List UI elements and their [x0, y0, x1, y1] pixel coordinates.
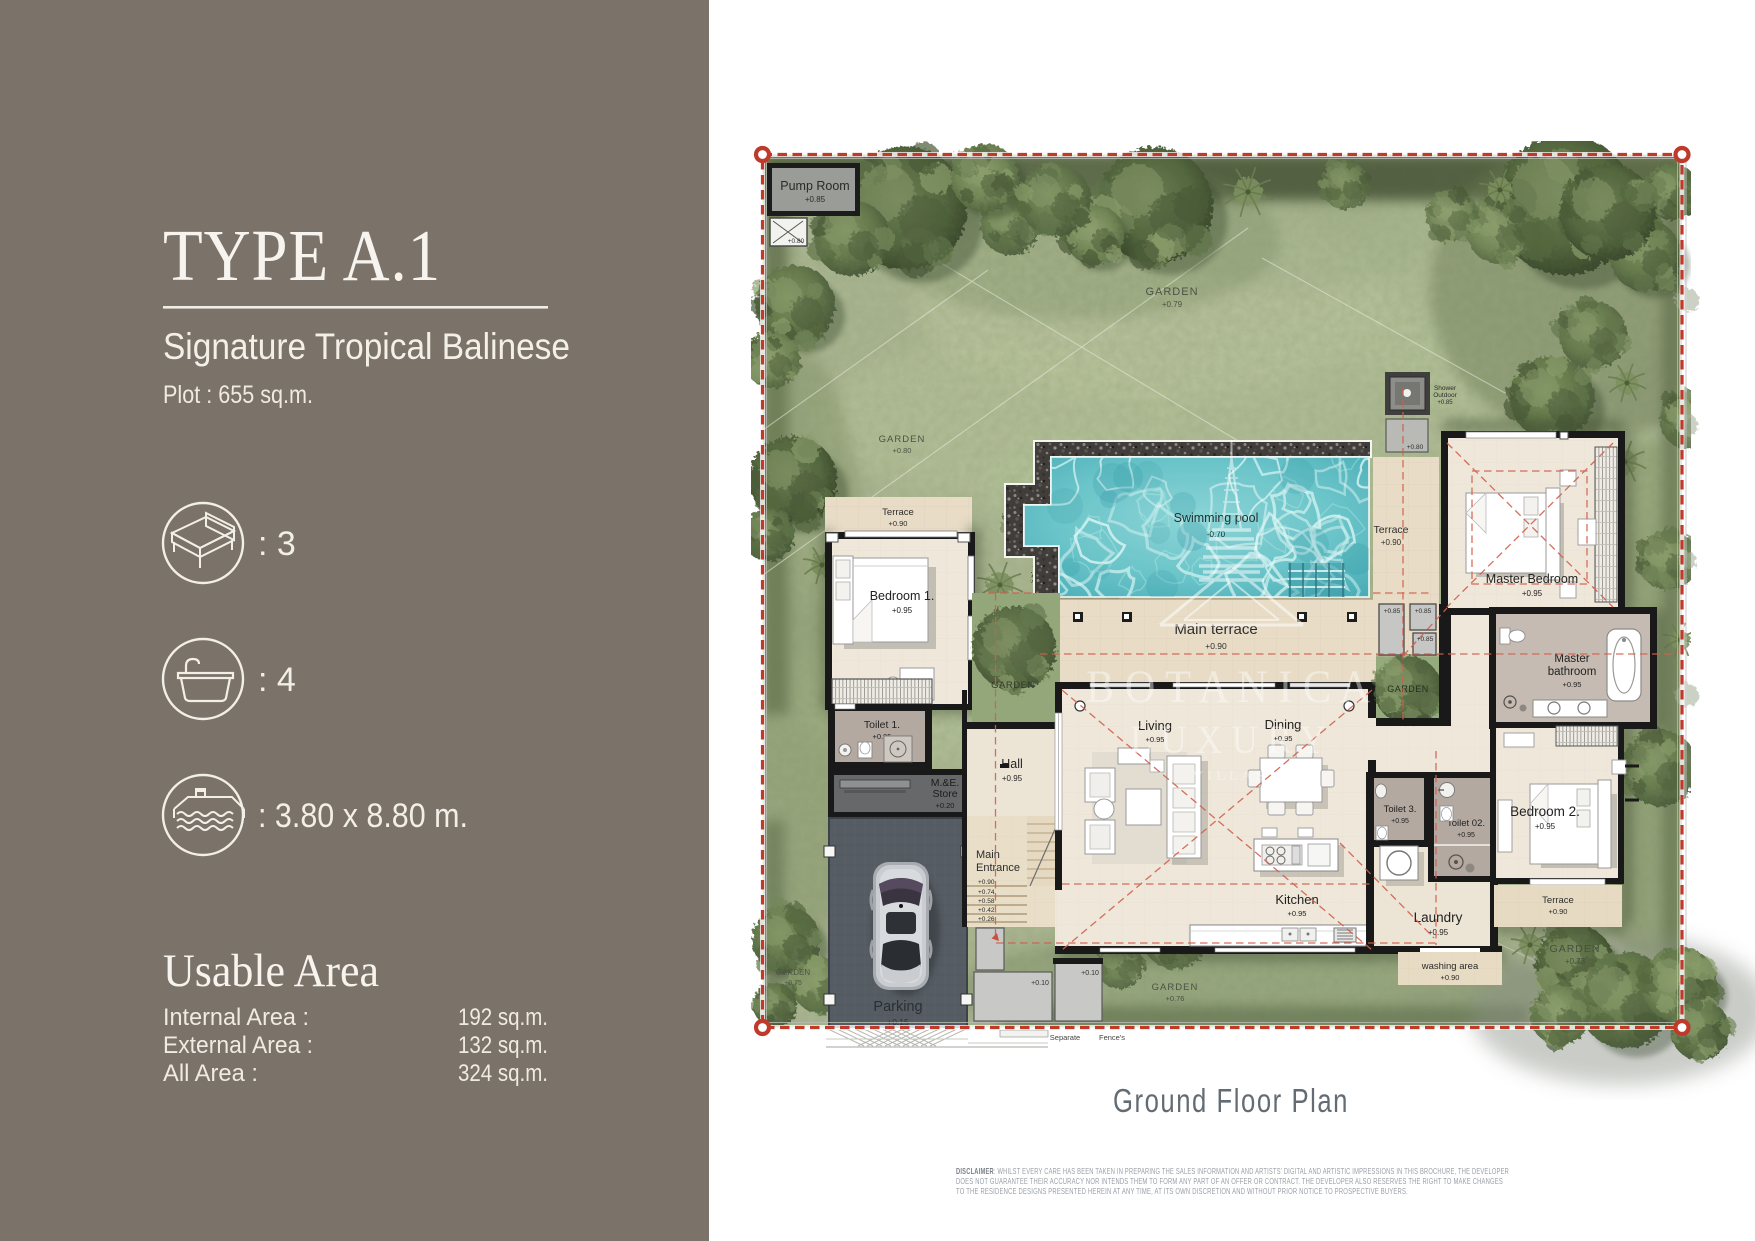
svg-text:+0.80: +0.80: [788, 238, 805, 245]
svg-text:+0.79: +0.79: [1162, 300, 1183, 309]
svg-text:TYPE A.1: TYPE A.1: [163, 215, 441, 296]
svg-text:Terrace: Terrace: [882, 507, 914, 518]
svg-text:Plot : 655 sq.m.: Plot : 655 sq.m.: [163, 381, 313, 409]
svg-text:+0.90: +0.90: [1441, 973, 1460, 982]
svg-text:Terrace: Terrace: [1542, 895, 1574, 906]
svg-text:GARDEN: GARDEN: [1145, 286, 1198, 298]
svg-text:Outdoor: Outdoor: [1433, 392, 1457, 399]
svg-text:External Area :: External Area :: [163, 1032, 313, 1059]
svg-text:GARDEN: GARDEN: [991, 680, 1035, 691]
svg-text:Ground Floor Plan: Ground Floor Plan: [1113, 1082, 1349, 1119]
svg-text:Main: Main: [976, 849, 1000, 861]
svg-text:DISCLAIMER: WHILST EVERY CARE: DISCLAIMER: WHILST EVERY CARE HAS BEEN T…: [956, 1167, 1509, 1176]
svg-text:+0.85: +0.85: [1384, 608, 1401, 615]
svg-text:TO THE RESIDENCE DESIGNS PRESE: TO THE RESIDENCE DESIGNS PRESENTED HEREI…: [956, 1187, 1408, 1196]
svg-text:Laundry: Laundry: [1414, 910, 1463, 925]
svg-text:+0.85: +0.85: [1437, 400, 1453, 406]
svg-text:+0.20: +0.20: [936, 801, 955, 810]
svg-text:+0.80: +0.80: [1407, 444, 1424, 451]
svg-text:+0.95: +0.95: [1288, 909, 1307, 918]
svg-text:Swimming pool: Swimming pool: [1174, 511, 1259, 525]
svg-text:+0.58: +0.58: [978, 898, 995, 905]
svg-text:Bedroom 1.: Bedroom 1.: [870, 589, 935, 603]
svg-text:+0.95: +0.95: [1522, 589, 1543, 598]
svg-text:+0.26: +0.26: [978, 916, 995, 923]
svg-text:+0.80: +0.80: [893, 446, 912, 455]
svg-text:GARDEN: GARDEN: [1387, 684, 1429, 694]
svg-text:GARDEN: GARDEN: [1550, 943, 1601, 955]
svg-text:+0.95: +0.95: [1002, 774, 1023, 783]
svg-text:+0.90: +0.90: [1381, 538, 1402, 547]
svg-text:192 sq.m.: 192 sq.m.: [458, 1004, 548, 1031]
svg-text:GARDEN: GARDEN: [879, 434, 926, 445]
svg-text:324 sq.m.: 324 sq.m.: [458, 1060, 548, 1087]
svg-text:+0.95: +0.95: [1457, 832, 1475, 839]
svg-text:Fence's: Fence's: [1099, 1033, 1125, 1042]
svg-text:GARDEN: GARDEN: [1152, 982, 1199, 993]
svg-text:+0.90: +0.90: [1549, 907, 1568, 916]
svg-text:L U X U R Y: L U X U R Y: [1130, 717, 1326, 762]
svg-text:+0.85: +0.85: [1415, 608, 1432, 615]
svg-text:+0.95: +0.95: [1428, 928, 1449, 937]
svg-text:+0.85: +0.85: [805, 195, 826, 204]
svg-text:132 sq.m.: 132 sq.m.: [458, 1032, 548, 1059]
svg-text:: 4: : 4: [258, 661, 296, 699]
svg-text:+0.10: +0.10: [1031, 980, 1049, 987]
svg-text:V I L L A S: V I L L A S: [1192, 769, 1264, 784]
svg-text:+0.42: +0.42: [978, 907, 995, 914]
svg-text:Internal Area :: Internal Area :: [163, 1004, 309, 1031]
svg-text:+0.90: +0.90: [978, 879, 995, 886]
svg-text:Master: Master: [1554, 653, 1589, 665]
svg-text:Signature Tropical Balinese: Signature Tropical Balinese: [163, 326, 570, 367]
svg-text:: 3.80 x 8.80 m.: : 3.80 x 8.80 m.: [258, 797, 468, 835]
svg-text:Bedroom 2.: Bedroom 2.: [1510, 804, 1580, 819]
svg-text:+0.95: +0.95: [1391, 818, 1409, 825]
svg-text:Entrance: Entrance: [976, 862, 1020, 874]
svg-text:bathroom: bathroom: [1548, 666, 1597, 678]
svg-text:+0.90: +0.90: [1205, 641, 1227, 651]
svg-text:Toilet 1.: Toilet 1.: [864, 719, 900, 731]
svg-text:GARDEN: GARDEN: [776, 968, 810, 977]
svg-text:+0.95: +0.95: [1535, 822, 1556, 831]
svg-text:Shower: Shower: [1434, 385, 1457, 392]
svg-text:+0.75: +0.75: [784, 980, 802, 987]
svg-text:DOES NOT GUARANTEE THEIR ACCUR: DOES NOT GUARANTEE THEIR ACCURACY NOR IN…: [956, 1177, 1503, 1186]
svg-text:+0.95: +0.95: [892, 606, 913, 615]
svg-text:B O T A N I C A: B O T A N I C A: [1086, 661, 1370, 713]
svg-text:+0.76: +0.76: [1166, 994, 1185, 1003]
svg-text:: 3: : 3: [258, 525, 296, 563]
svg-text:All Area :: All Area :: [163, 1060, 258, 1087]
svg-text:Toilet 3.: Toilet 3.: [1384, 804, 1417, 815]
svg-text:+0.73: +0.73: [1565, 957, 1586, 966]
svg-text:Separate: Separate: [1050, 1033, 1080, 1042]
svg-text:+0.95: +0.95: [1563, 680, 1582, 689]
svg-text:+0.74: +0.74: [978, 889, 995, 896]
svg-text:Store: Store: [932, 788, 957, 800]
svg-text:+0.85: +0.85: [1417, 636, 1434, 643]
svg-text:washing area: washing area: [1421, 961, 1479, 972]
svg-text:+0.90: +0.90: [889, 519, 908, 528]
svg-text:Usable Area: Usable Area: [163, 945, 379, 997]
svg-text:Parking: Parking: [873, 999, 922, 1015]
svg-text:Pump Room: Pump Room: [780, 179, 849, 193]
svg-text:+0.10: +0.10: [1081, 970, 1099, 977]
